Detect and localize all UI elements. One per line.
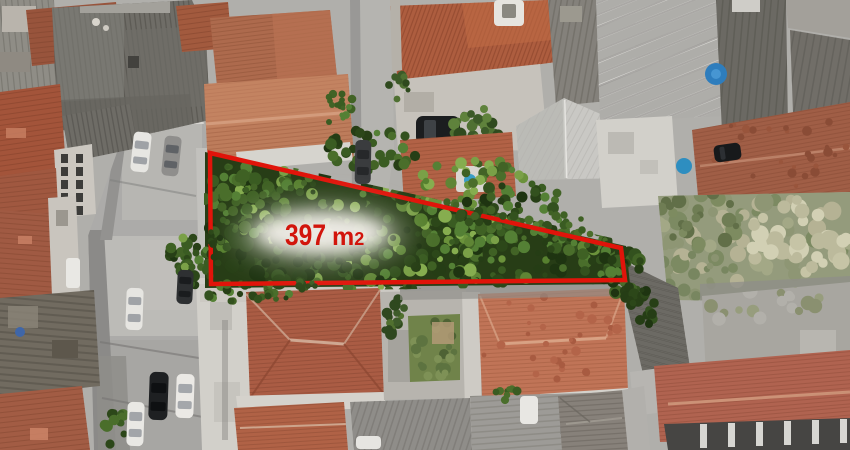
svg-text:397: 397 [285, 219, 326, 252]
